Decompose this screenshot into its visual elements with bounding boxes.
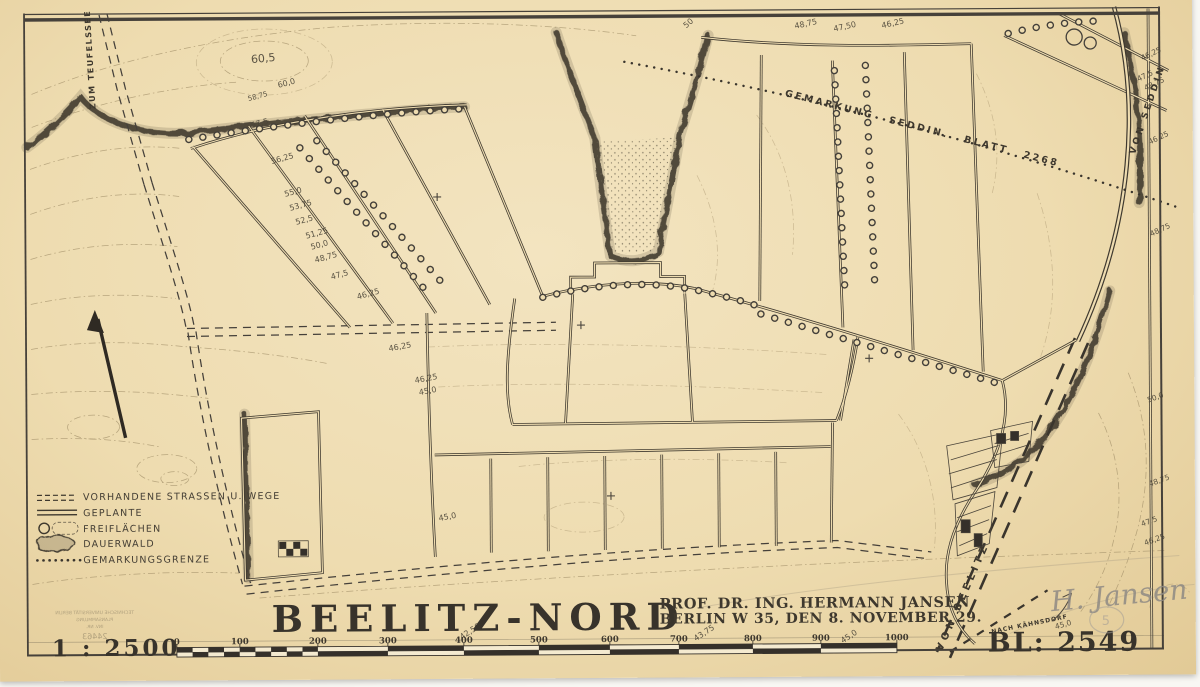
scale-tick-label: 1000 (885, 633, 909, 643)
stamp-line: 24463 (82, 632, 108, 641)
circled-note: 5 (1102, 614, 1110, 629)
stamp-line: INV. NR. (86, 624, 103, 630)
scale-tick-label: 0 (174, 638, 180, 648)
elevation-label: 46,25 (414, 372, 438, 385)
scale-tick-label: 900 (812, 634, 830, 644)
legend-symbol-open-space (39, 522, 78, 534)
scale-tick-label: 200 (309, 637, 327, 647)
hatched-plots (947, 421, 1034, 556)
elevation-label: 45,0 (418, 385, 437, 397)
north-arrow (87, 310, 126, 438)
elevation-label: 46,25 (881, 17, 905, 31)
elevation-label: 60,0 (277, 76, 297, 89)
scale-label: 1 : 2500 (52, 635, 181, 663)
contour-lines (29, 19, 1190, 620)
legend-label: VORHANDENE STRASSEN U. WEGE (83, 491, 281, 503)
scale-tick-label: 500 (530, 635, 548, 645)
scale-tick-label: 300 (379, 636, 397, 646)
author-line-2: BERLIN W 35, DEN 8. NOVEMBER 29. (660, 610, 982, 628)
paper-sheet: 60,5 60,0 58,75 57,5 56,25 55,0 53,75 52… (0, 0, 1196, 682)
legend-label: DAUERWALD (83, 539, 155, 550)
checker-building-block (278, 541, 308, 557)
scale-tick-label: 800 (744, 634, 762, 644)
elevation-label: 45,0 (839, 628, 859, 645)
scanned-plan-page: 60,5 60,0 58,75 57,5 56,25 55,0 53,75 52… (0, 0, 1200, 687)
elevation-label: 45,0 (438, 511, 457, 523)
scale-tick-label: 700 (670, 634, 688, 644)
scale-tick-label: 100 (231, 637, 249, 647)
elevation-label: 48,75 (794, 17, 818, 31)
stamp-line: PLANSAMMLUNG (76, 617, 114, 623)
sheet-number: BL: 2549 (988, 627, 1141, 659)
elevation-label: 46,25 (1147, 129, 1170, 146)
elevation-label: 46,25 (388, 340, 412, 353)
architect-signature: H. Jansen (1048, 573, 1189, 619)
map-canvas: 60,5 60,0 58,75 57,5 56,25 55,0 53,75 52… (0, 0, 1196, 682)
legend-symbol-dauerwald (37, 536, 74, 551)
scale-tick-label: 400 (455, 636, 473, 646)
elevation-label: 60,5 (250, 51, 276, 66)
label-gemarkung-seddin: GEMARKUNG SEDDIN. BLATT 2268 (784, 88, 1061, 169)
elevation-label: 47,5 (1140, 514, 1159, 528)
elevation-label: 47,50 (833, 20, 857, 34)
elevation-label: 50,0 (310, 238, 330, 251)
map-title: BEELITZ-NORD (272, 594, 686, 641)
legend-label: GEPLANTE (83, 508, 143, 519)
stamp-line: TECHNISCHE UNIVERSITÄT BERLIN (55, 609, 135, 616)
road-von-seddin (1076, 7, 1130, 341)
elevation-label: 52,5 (294, 213, 314, 226)
elevation-label: 47,5 (330, 268, 350, 281)
legend-label: GEMARKUNGSGRENZE (83, 554, 210, 566)
legend-label: FREIFLÄCHEN (83, 524, 161, 535)
elevation-label: 56,25 (270, 151, 294, 166)
legend-symbol-dashed-road (37, 495, 77, 500)
planned-roads-outer (190, 8, 1172, 654)
elevation-label: 48,75 (314, 250, 338, 265)
elevation-label: 50 (682, 17, 696, 30)
planned-roads-core (190, 8, 1172, 654)
scale-tick-label: 600 (601, 635, 619, 645)
elevation-label: 58,75 (247, 90, 268, 103)
legend-symbol-planned-road (37, 510, 77, 515)
road-von-seddin-core (1076, 7, 1130, 341)
